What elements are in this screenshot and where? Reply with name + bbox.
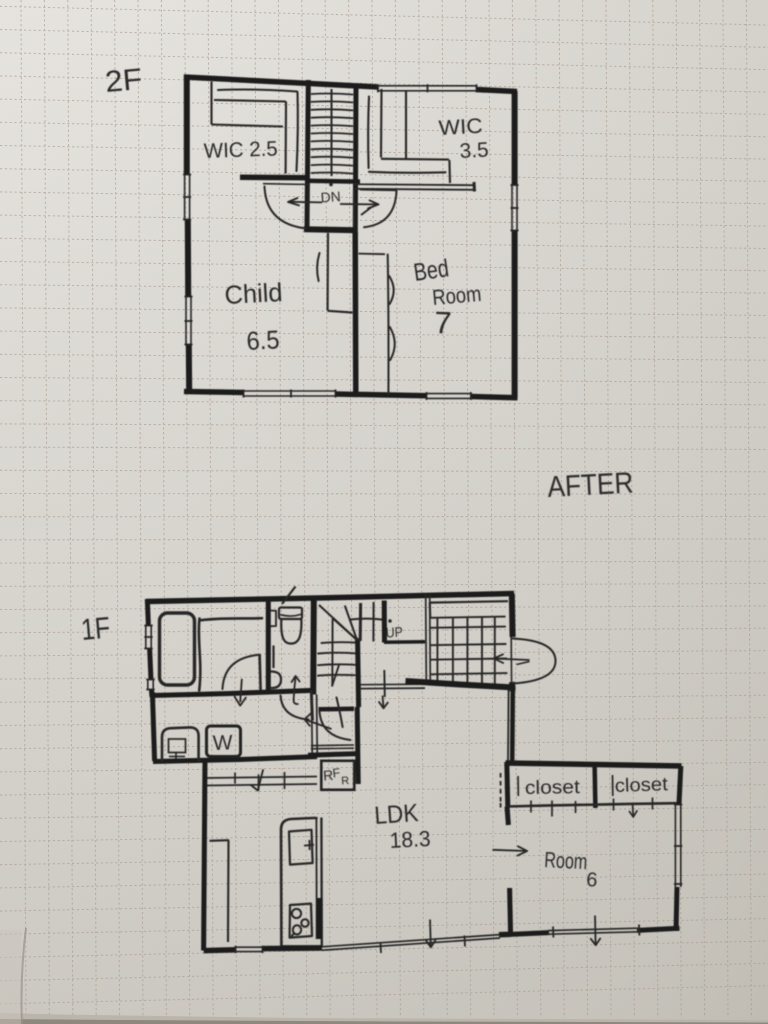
svg-text:7: 7 [434,305,452,341]
svg-text:closet: closet [614,774,668,797]
svg-text:2F: 2F [104,63,144,99]
svg-text:R: R [341,775,350,788]
svg-text:Bed: Bed [412,254,451,287]
svg-text:1F: 1F [80,612,112,647]
svg-text:6: 6 [586,869,598,892]
svg-text:UP: UP [385,624,403,641]
svg-text:DN: DN [320,188,341,205]
svg-text:AFTER: AFTER [547,467,635,504]
svg-text:WIC 2.5: WIC 2.5 [203,137,278,163]
svg-text:18.3: 18.3 [389,826,431,853]
svg-text:closet: closet [525,777,581,799]
svg-text:W: W [212,731,233,755]
svg-text:WIC: WIC [438,115,483,140]
svg-text:Room: Room [544,847,588,874]
svg-text:Child: Child [224,277,283,310]
svg-text:LDK: LDK [373,799,419,830]
svg-text:3.5: 3.5 [459,139,489,163]
svg-text:6.5: 6.5 [246,324,281,356]
